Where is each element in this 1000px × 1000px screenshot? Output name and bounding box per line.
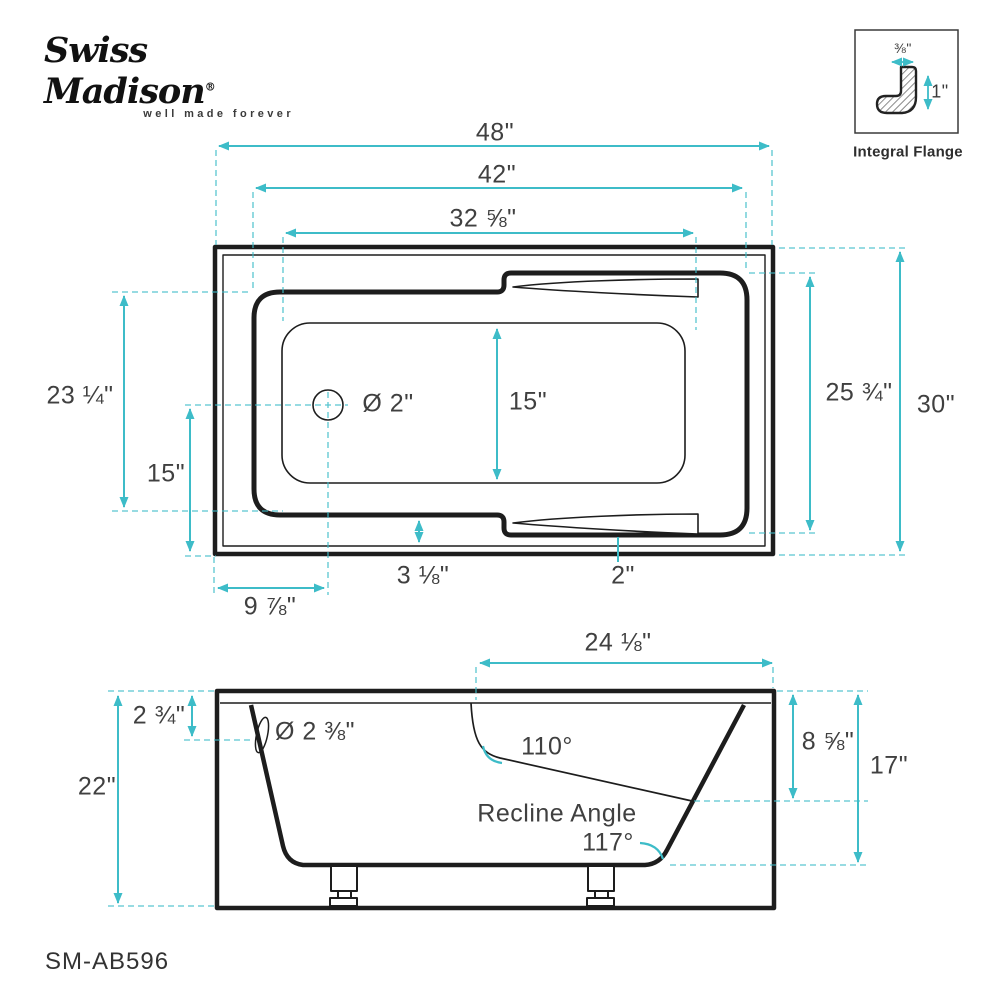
dim-backrest-height-label: 8 ⅝" xyxy=(802,728,855,757)
dim-interior-depth-label: 17" xyxy=(870,752,908,781)
backrest-angle-label: 110° xyxy=(521,733,573,762)
dim-rim-width-right-label: 25 ¾" xyxy=(826,379,893,408)
flange-detail-title: Integral Flange xyxy=(853,144,963,161)
dim-armrest-width-label: 2" xyxy=(611,562,635,591)
registered-mark: ® xyxy=(205,80,215,93)
flange-width-label: ⅜" xyxy=(894,40,912,56)
flange-height-label: 1" xyxy=(931,82,948,103)
diagram-page: Swiss Madison® well made forever 48" 42"… xyxy=(0,0,1000,1000)
leveling-foot-right xyxy=(587,866,614,906)
dim-deck-gap-label: 3 ⅛" xyxy=(397,562,450,591)
dim-basin-length-label: 32 ⅝" xyxy=(450,205,517,234)
seat-profile-line xyxy=(471,703,692,801)
dim-drain-offset-label: 9 ⅞" xyxy=(244,593,297,622)
dim-basin-width-label: 15" xyxy=(509,388,547,417)
top-view-outline xyxy=(215,247,773,554)
dim-overall-length-label: 48" xyxy=(476,119,514,148)
dim-rim-length-label: 42" xyxy=(478,161,516,190)
brand-name: Swiss Madison® xyxy=(44,30,294,112)
model-number: SM-AB596 xyxy=(45,948,169,976)
armrest-bottom xyxy=(513,514,698,534)
dim-rim-thickness-label: 2 ¾" xyxy=(133,702,186,731)
dim-overall-width-label: 30" xyxy=(917,391,955,420)
armrest-top xyxy=(513,279,698,297)
technical-drawing xyxy=(0,0,1000,1000)
brand-name-text: Swiss Madison xyxy=(44,30,205,112)
dim-rim-width-left-label: 23 ¼" xyxy=(47,382,114,411)
dim-drain-diameter-label: Ø 2" xyxy=(362,390,413,419)
dim-deck-length-label: 24 ⅛" xyxy=(585,629,652,658)
tub-inner-edge xyxy=(223,255,765,546)
leveling-foot-left xyxy=(330,866,357,906)
dim-overall-height-label: 22" xyxy=(78,773,116,802)
recline-angle-title: Recline Angle xyxy=(477,800,636,829)
flange-cross-section xyxy=(877,67,916,113)
recline-angle-label: 117° xyxy=(582,829,634,858)
brand-logo: Swiss Madison® well made forever xyxy=(44,30,294,120)
dim-overflow-diameter-label: Ø 2 ⅜" xyxy=(275,718,355,747)
dim-drain-to-edge-label: 15" xyxy=(147,460,185,489)
